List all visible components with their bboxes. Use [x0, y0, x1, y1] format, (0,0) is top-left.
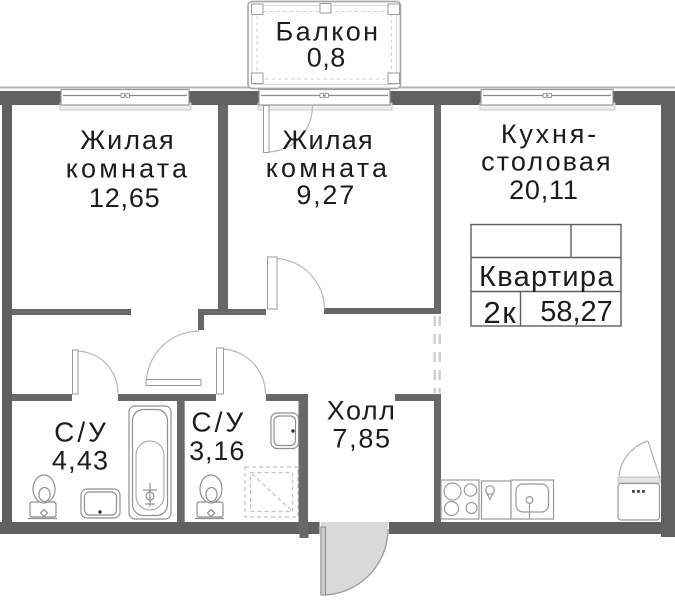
- svg-text:12,65: 12,65: [89, 183, 161, 213]
- svg-text:столовая: столовая: [481, 147, 613, 177]
- svg-text:Жилая: Жилая: [282, 125, 373, 155]
- svg-text:4,43: 4,43: [52, 446, 109, 476]
- svg-text:Квартира: Квартира: [479, 261, 615, 293]
- svg-text:58,27: 58,27: [540, 296, 613, 328]
- svg-text:0,8: 0,8: [307, 43, 346, 73]
- svg-text:комната: комната: [66, 154, 191, 184]
- svg-text:3,16: 3,16: [189, 436, 245, 466]
- svg-text:20,11: 20,11: [509, 175, 579, 205]
- svg-text:Холл: Холл: [327, 395, 397, 425]
- svg-text:С/У: С/У: [54, 417, 109, 448]
- svg-text:7,85: 7,85: [332, 424, 391, 454]
- svg-text:9,27: 9,27: [296, 180, 356, 210]
- svg-text:Кухня-: Кухня-: [501, 119, 599, 149]
- svg-text:2к: 2к: [483, 295, 517, 330]
- svg-text:комната: комната: [266, 153, 391, 183]
- svg-text:Жилая: Жилая: [80, 125, 175, 155]
- svg-text:С/У: С/У: [191, 407, 246, 438]
